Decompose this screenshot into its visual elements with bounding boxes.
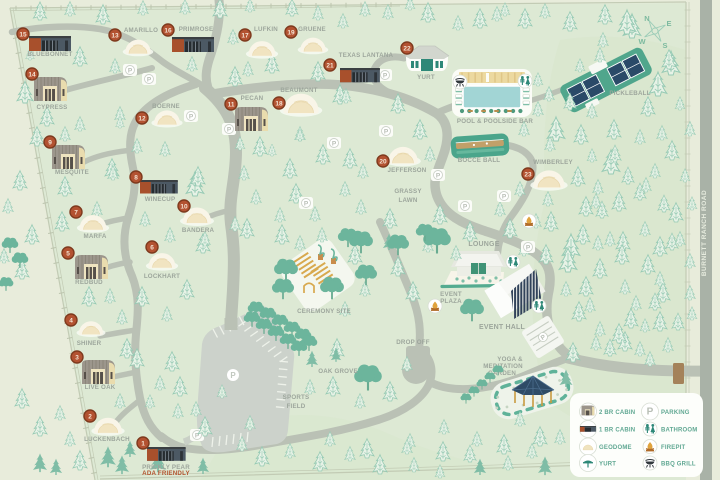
svg-text:W: W	[638, 37, 646, 46]
svg-text:10: 10	[180, 203, 188, 210]
svg-text:WIMBERLEY: WIMBERLEY	[533, 159, 573, 166]
svg-text:4: 4	[69, 317, 73, 324]
svg-text:JEFFERSON: JEFFERSON	[388, 167, 427, 174]
svg-text:2 BR CABIN: 2 BR CABIN	[599, 410, 635, 416]
svg-text:REDBUD: REDBUD	[75, 279, 103, 286]
svg-text:MESQUITE: MESQUITE	[55, 169, 89, 176]
svg-text:5: 5	[66, 250, 70, 257]
svg-text:PLAZA: PLAZA	[440, 298, 462, 305]
svg-text:GRASSY: GRASSY	[394, 188, 422, 195]
svg-text:1: 1	[141, 440, 145, 447]
svg-text:BANDERA: BANDERA	[182, 227, 215, 234]
svg-text:22: 22	[403, 45, 411, 52]
svg-text:FIREPIT: FIREPIT	[661, 445, 686, 451]
svg-text:DROP OFF: DROP OFF	[396, 339, 429, 346]
svg-text:EVENT: EVENT	[440, 291, 462, 298]
svg-text:13: 13	[111, 32, 119, 39]
svg-text:15: 15	[19, 31, 27, 38]
svg-text:POOL & POOLSIDE BAR: POOL & POOLSIDE BAR	[457, 118, 534, 125]
svg-text:14: 14	[28, 71, 36, 78]
svg-text:CYPRESS: CYPRESS	[37, 104, 68, 111]
svg-text:LUFKIN: LUFKIN	[254, 26, 278, 33]
svg-text:9: 9	[48, 139, 52, 146]
svg-text:BOERNE: BOERNE	[152, 103, 180, 110]
svg-text:S: S	[662, 41, 667, 50]
svg-text:PECAN: PECAN	[241, 95, 264, 102]
svg-text:21: 21	[326, 62, 334, 69]
svg-text:2: 2	[88, 413, 92, 420]
svg-text:SHINER: SHINER	[77, 340, 102, 347]
svg-text:11: 11	[228, 101, 235, 108]
svg-text:ADA FRIENDLY: ADA FRIENDLY	[142, 470, 190, 477]
svg-text:12: 12	[138, 115, 146, 122]
svg-text:TEXAS LANTANA: TEXAS LANTANA	[339, 52, 394, 59]
svg-text:WINECUP: WINECUP	[145, 196, 176, 203]
svg-text:BOCCE BALL: BOCCE BALL	[458, 157, 501, 164]
svg-text:PARKING: PARKING	[661, 410, 690, 416]
svg-text:LOUNGE: LOUNGE	[468, 241, 499, 248]
svg-text:BBQ GRILL: BBQ GRILL	[661, 462, 696, 468]
svg-text:GRUENE: GRUENE	[298, 26, 326, 33]
svg-text:LOCKHART: LOCKHART	[144, 273, 180, 280]
svg-text:YOGA &: YOGA &	[497, 356, 523, 363]
svg-text:BATHROOM: BATHROOM	[661, 428, 697, 434]
svg-text:GEODOME: GEODOME	[599, 445, 632, 451]
svg-text:CEREMONY SITE: CEREMONY SITE	[297, 308, 351, 315]
svg-text:16: 16	[164, 27, 172, 34]
svg-text:YURT: YURT	[599, 462, 616, 468]
svg-text:3: 3	[75, 354, 79, 361]
svg-text:BEAUMONT: BEAUMONT	[280, 87, 317, 94]
svg-text:20: 20	[379, 158, 387, 165]
svg-text:LAWN: LAWN	[398, 197, 417, 204]
svg-text:PRIMROSE: PRIMROSE	[179, 26, 214, 33]
svg-text:BLUEBONNET: BLUEBONNET	[28, 51, 73, 58]
svg-text:PICKLEBALL: PICKLEBALL	[609, 90, 650, 97]
svg-text:18: 18	[275, 100, 283, 107]
svg-text:23: 23	[524, 171, 532, 178]
svg-text:EVENT HALL: EVENT HALL	[479, 324, 525, 331]
svg-text:7: 7	[74, 209, 78, 216]
svg-text:17: 17	[241, 32, 249, 39]
svg-text:MARFA: MARFA	[84, 233, 107, 240]
svg-text:19: 19	[287, 29, 295, 36]
svg-text:8: 8	[134, 174, 138, 181]
svg-text:N: N	[644, 14, 649, 23]
svg-text:P: P	[647, 407, 654, 418]
svg-text:SPORTS: SPORTS	[283, 394, 310, 401]
svg-text:FIELD: FIELD	[287, 403, 306, 410]
svg-text:6: 6	[150, 244, 154, 251]
svg-text:P: P	[230, 371, 236, 380]
svg-text:LUCKENBACH: LUCKENBACH	[84, 436, 130, 443]
svg-text:YURT: YURT	[417, 74, 435, 81]
svg-text:OAK GROVE: OAK GROVE	[318, 368, 358, 375]
svg-text:1 BR CABIN: 1 BR CABIN	[599, 428, 635, 434]
svg-text:BURNETT RANCH ROAD: BURNETT RANCH ROAD	[701, 190, 708, 276]
svg-text:AMARILLO: AMARILLO	[124, 27, 158, 34]
svg-text:LIVE OAK: LIVE OAK	[85, 384, 116, 391]
svg-text:E: E	[666, 19, 671, 28]
